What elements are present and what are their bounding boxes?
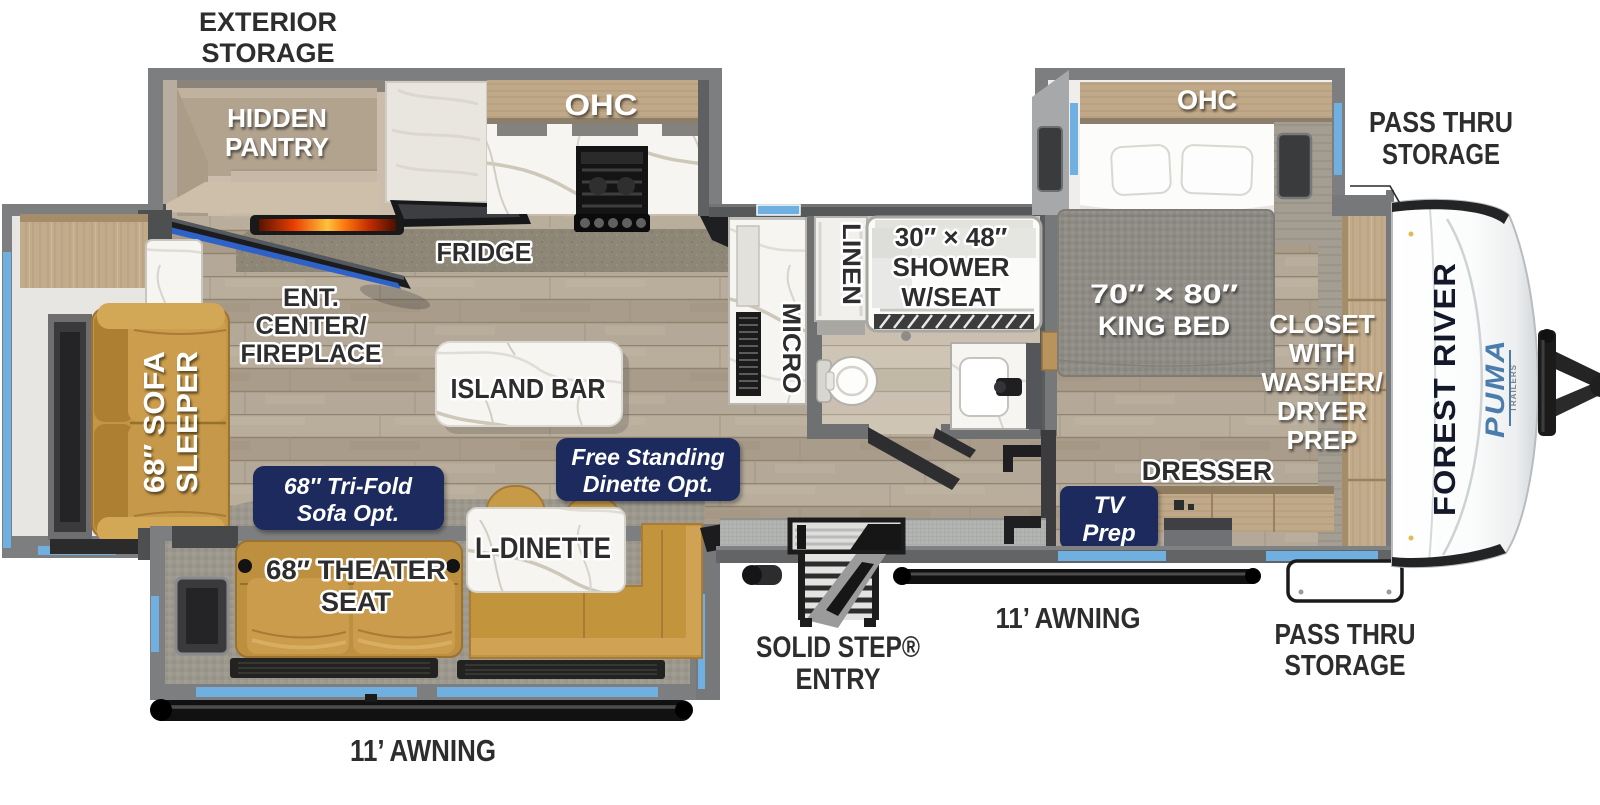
svg-text:30″ × 48″: 30″ × 48″ <box>895 222 1007 252</box>
svg-text:KING BED: KING BED <box>1098 311 1230 341</box>
svg-text:DRESSER: DRESSER <box>1142 456 1273 486</box>
svg-text:OHC: OHC <box>565 89 638 122</box>
svg-text:Prep: Prep <box>1082 520 1135 547</box>
svg-text:HIDDEN: HIDDEN <box>227 103 327 133</box>
svg-text:Sofa Opt.: Sofa Opt. <box>297 500 399 526</box>
svg-text:SLEEPER: SLEEPER <box>172 351 204 493</box>
svg-text:CLOSET: CLOSET <box>1269 309 1375 339</box>
svg-text:WITH: WITH <box>1289 338 1355 368</box>
svg-text:WASHER/: WASHER/ <box>1261 367 1382 397</box>
svg-text:OHC: OHC <box>1177 85 1237 115</box>
svg-text:FOREST RIVER: FOREST RIVER <box>1427 262 1462 516</box>
svg-text:70″ × 80″: 70″ × 80″ <box>1090 279 1238 309</box>
svg-text:MICRO: MICRO <box>777 303 805 394</box>
svg-text:FRIDGE: FRIDGE <box>437 237 532 267</box>
svg-text:PANTRY: PANTRY <box>225 132 329 162</box>
svg-text:W/SEAT: W/SEAT <box>901 282 1000 312</box>
svg-text:PREP: PREP <box>1287 425 1358 455</box>
svg-text:68″ SOFA: 68″ SOFA <box>139 351 171 493</box>
svg-text:DRYER: DRYER <box>1277 396 1367 426</box>
svg-text:Dinette Opt.: Dinette Opt. <box>583 471 713 497</box>
svg-text:68″ Tri-Fold: 68″ Tri-Fold <box>284 473 413 499</box>
svg-text:ISLAND BAR: ISLAND BAR <box>451 373 606 404</box>
svg-text:ENTRY: ENTRY <box>796 663 881 696</box>
svg-text:STORAGE: STORAGE <box>201 38 334 68</box>
svg-text:FIREPLACE: FIREPLACE <box>241 340 382 368</box>
svg-text:SHOWER: SHOWER <box>893 252 1010 282</box>
svg-text:CENTER/: CENTER/ <box>256 312 367 340</box>
svg-text:SEAT: SEAT <box>321 587 392 617</box>
svg-text:Free Standing: Free Standing <box>571 444 724 470</box>
svg-text:EXTERIOR: EXTERIOR <box>199 7 337 37</box>
svg-text:STORAGE: STORAGE <box>1382 139 1500 171</box>
svg-text:PUMA: PUMA <box>1480 338 1510 438</box>
svg-text:STORAGE: STORAGE <box>1285 650 1406 682</box>
svg-text:ENT.: ENT. <box>283 284 339 312</box>
svg-text:11’ AWNING: 11’ AWNING <box>350 733 496 768</box>
svg-text:11’ AWNING: 11’ AWNING <box>996 603 1141 635</box>
svg-text:PASS THRU: PASS THRU <box>1275 619 1416 651</box>
svg-text:LINEN: LINEN <box>837 223 865 305</box>
svg-text:PASS THRU: PASS THRU <box>1369 107 1513 139</box>
svg-text:SOLID STEP®: SOLID STEP® <box>756 631 920 664</box>
svg-text:L-DINETTE: L-DINETTE <box>475 532 611 565</box>
svg-text:TV: TV <box>1094 492 1127 519</box>
svg-text:68″ THEATER: 68″ THEATER <box>266 555 446 585</box>
